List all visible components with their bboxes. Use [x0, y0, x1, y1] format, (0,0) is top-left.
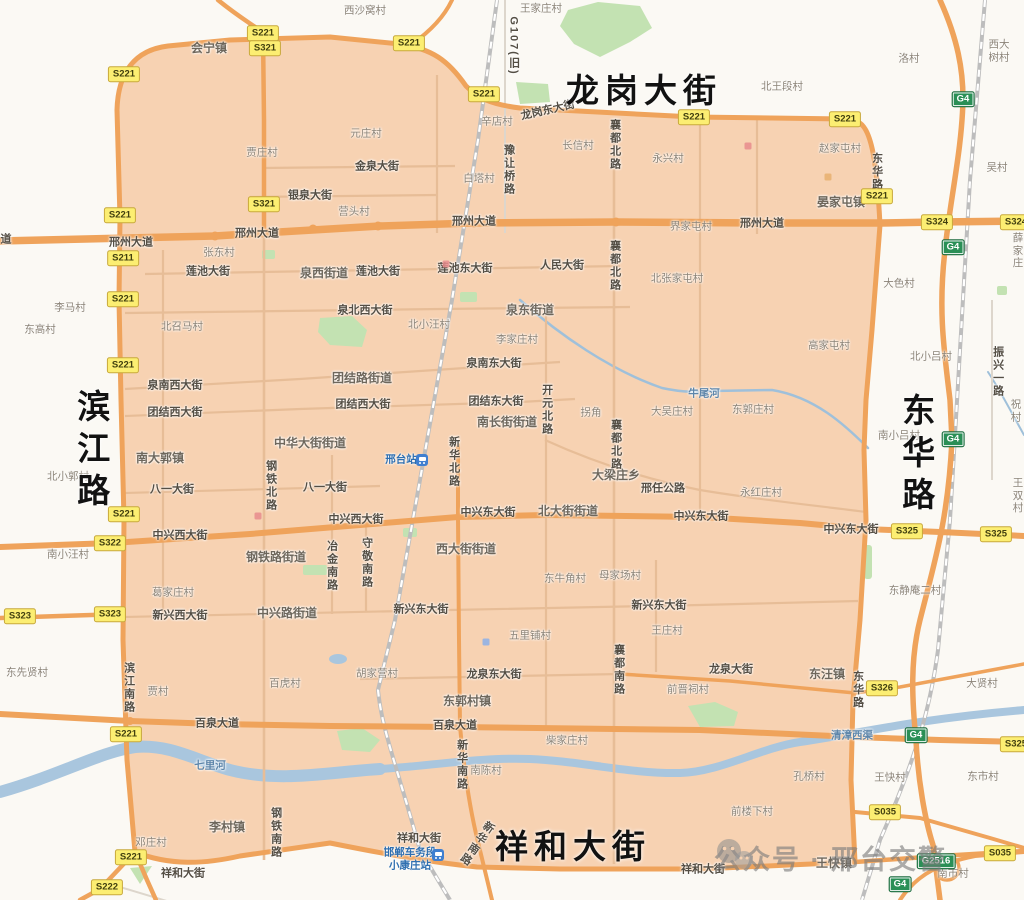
village-label: 孔桥村	[793, 771, 825, 784]
road-badge-s221: S221	[115, 849, 147, 865]
street-label: 中兴西大街	[329, 513, 384, 526]
village-label: 大吴庄村	[651, 406, 693, 419]
river-label: 清漳西渠	[831, 730, 873, 743]
station-label: 邢台站	[385, 454, 417, 467]
street-label: 东华路	[869, 153, 882, 192]
village-label: 北小吕村	[910, 351, 952, 364]
district-label: 中兴路街道	[257, 606, 317, 620]
village-label: 胡家营村	[356, 668, 398, 681]
road-badge-s221: S221	[108, 506, 140, 522]
village-label: 北小汪村	[408, 319, 450, 332]
street-label: 泉南西大街	[148, 379, 203, 392]
street-label: 莲池大街	[356, 265, 400, 278]
road-badge-g4: G4	[889, 876, 912, 892]
road-badge-s221: S221	[247, 25, 279, 41]
street-label: 道	[1, 233, 12, 246]
major-road-title: 东华路	[896, 393, 936, 519]
district-label: 东郭村镇	[443, 694, 491, 708]
road-badge-s221: S221	[104, 207, 136, 223]
street-label: 新兴西大街	[153, 609, 208, 622]
road-badge-s221: S221	[110, 726, 142, 742]
poi-marker	[825, 174, 832, 181]
street-label: 新华南路	[454, 739, 467, 791]
village-label: 南小汪村	[47, 549, 89, 562]
major-road-title: 龙岗大街	[566, 71, 722, 111]
village-label: 母家场村	[599, 570, 641, 583]
poi-marker	[483, 639, 490, 646]
district-label: 泉东街道	[506, 303, 554, 317]
street-label: 滨江南路	[121, 662, 134, 714]
street-label: 祥和大街	[397, 832, 441, 845]
district-label: 会宁镇	[191, 41, 227, 55]
village-label: 北王段村	[761, 81, 803, 94]
village-label: 葛家庄村	[152, 587, 194, 600]
village-label: 西沙窝村	[344, 5, 386, 18]
street-label: 开元北路	[539, 384, 552, 436]
village-label: 大色村	[883, 278, 915, 291]
road-badge-g4: G4	[942, 239, 965, 255]
street-label: G107(旧)	[506, 16, 519, 75]
road-badge-s325: S325	[1000, 736, 1024, 752]
road-badge-s321: S321	[248, 196, 280, 212]
district-label: 中华大街街道	[274, 436, 346, 450]
street-label: 中兴东大街	[461, 506, 516, 519]
street-label: 新华南路	[456, 818, 497, 868]
street-label: 襄都南路	[611, 644, 624, 696]
map-canvas[interactable]: 西沙窝村王家庄村北王段村洛村西大树村吴村辛店村元庄村贾庄村白塔村营头村张东村长信…	[0, 0, 1024, 900]
village-label: 营头村	[338, 206, 370, 219]
street-label: 襄都北路	[607, 119, 620, 171]
street-label: 龙泉东大街	[467, 668, 522, 681]
street-label: 百泉大道	[433, 719, 477, 732]
village-label: 五里铺村	[509, 630, 551, 643]
street-label: 新兴东大街	[394, 603, 449, 616]
station-label: 邯郸车务段 小康庄站	[384, 846, 437, 871]
village-label: 永兴村	[652, 153, 684, 166]
street-label: 新华北路	[446, 436, 459, 488]
village-label: 李马村	[54, 302, 86, 315]
village-label: 高家屯村	[808, 340, 850, 353]
train-station-icon	[432, 849, 444, 861]
street-label: 邢州大道	[452, 215, 496, 228]
district-label: 南大郭镇	[136, 451, 184, 465]
village-label: 吴村	[987, 162, 1008, 175]
road-badge-s322: S322	[94, 535, 126, 551]
street-label: 邢州大道	[109, 236, 153, 249]
road-badge-s222: S222	[91, 879, 123, 895]
street-label: 新兴东大街	[632, 599, 687, 612]
district-label: 团结路街道	[332, 371, 392, 385]
village-label: 长信村	[562, 140, 594, 153]
district-label: 钢铁路街道	[246, 550, 306, 564]
street-label: 邢州大道	[235, 227, 279, 240]
village-label: 洛村	[899, 53, 920, 66]
village-label: 王双村	[1013, 477, 1024, 515]
road-badge-s323: S323	[94, 606, 126, 622]
street-label: 中兴西大街	[153, 529, 208, 542]
street-label: 邢州大道	[740, 217, 784, 230]
village-label: 西大树村	[987, 38, 1012, 63]
district-label: 晏家屯镇	[817, 195, 865, 209]
village-label: 张东村	[203, 247, 235, 260]
village-label: 拐角	[581, 407, 602, 420]
river-label: 牛尾河	[688, 388, 720, 401]
street-label: 邢任公路	[641, 482, 685, 495]
road-badge-s326: S326	[866, 680, 898, 696]
street-label: 振兴一路	[990, 346, 1003, 398]
road-badge-s035: S035	[984, 845, 1016, 861]
road-badge-s221: S221	[829, 111, 861, 127]
village-label: 贾庄村	[246, 147, 278, 160]
road-badge-s221: S221	[107, 291, 139, 307]
major-road-title: 滨江路	[71, 389, 111, 515]
village-label: 贾村	[148, 686, 169, 699]
village-label: 辛店村	[481, 116, 513, 129]
village-label: 东静庵二村	[889, 585, 942, 598]
road-badge-s221: S221	[468, 86, 500, 102]
street-label: 钢铁南路	[268, 807, 281, 859]
road-badge-s221: S221	[678, 109, 710, 125]
village-label: 东先贤村	[6, 667, 48, 680]
village-label: 大贤村	[966, 678, 998, 691]
road-badge-s221: S221	[861, 188, 893, 204]
village-label: 永红庄村	[740, 487, 782, 500]
street-label: 钢铁北路	[263, 460, 276, 512]
road-badge-s221: S221	[108, 66, 140, 82]
district-label: 泉西街道	[300, 266, 348, 280]
village-label: 北召马村	[161, 321, 203, 334]
road-badge-s221: S221	[393, 35, 425, 51]
street-label: 八一大街	[303, 481, 347, 494]
village-label: 赵家屯村	[819, 143, 861, 156]
street-label: 祥和大街	[161, 867, 205, 880]
street-label: 中兴东大街	[674, 510, 729, 523]
street-label: 东华路	[850, 671, 863, 710]
district-label: 南长街街道	[477, 415, 537, 429]
village-label: 东牛角村	[544, 573, 586, 586]
street-label: 豫让桥路	[501, 144, 514, 196]
street-label: 八一大街	[150, 483, 194, 496]
village-label: 前晋祠村	[667, 684, 709, 697]
village-label: 王家庄村	[520, 3, 562, 16]
village-label: 北张家屯村	[651, 273, 704, 286]
village-label: 李家庄村	[496, 334, 538, 347]
river-label: 七里河	[194, 760, 226, 773]
road-badge-g4: G4	[905, 727, 928, 743]
street-label: 莲池大街	[186, 265, 230, 278]
village-label: 薛家庄	[1013, 232, 1024, 270]
map-labels-layer: 西沙窝村王家庄村北王段村洛村西大树村吴村辛店村元庄村贾庄村白塔村营头村张东村长信…	[0, 0, 1024, 900]
street-label: 金泉大街	[355, 160, 399, 173]
village-label: 南陈村	[470, 765, 502, 778]
road-badge-g4: G4	[942, 431, 965, 447]
district-label: 李村镇	[209, 820, 245, 834]
road-badge-g4: G4	[952, 91, 975, 107]
street-label: 泉南东大街	[467, 357, 522, 370]
village-label: 柴家庄村	[546, 735, 588, 748]
village-label: 东高村	[24, 324, 56, 337]
watermark: 公众号 · 邢台交警	[714, 838, 947, 877]
village-label: 王庄村	[651, 625, 683, 638]
road-badge-s035: S035	[869, 804, 901, 820]
street-label: 中兴东大街	[824, 523, 879, 536]
road-badge-s221: S221	[107, 357, 139, 373]
poi-marker	[443, 261, 450, 268]
poi-marker	[255, 513, 262, 520]
wechat-icon	[714, 838, 758, 872]
road-badge-s324: S324	[921, 214, 953, 230]
street-label: 龙泉大街	[709, 663, 753, 676]
road-badge-s211: S211	[107, 250, 139, 266]
major-road-title: 祥和大街	[495, 827, 651, 867]
village-label: 东市村	[967, 771, 999, 784]
street-label: 襄都北路	[608, 419, 621, 471]
street-label: 团结西大街	[336, 398, 391, 411]
village-label: 前楼下村	[731, 806, 773, 819]
street-label: 襄都北路	[607, 240, 620, 292]
village-label: 界家屯村	[670, 221, 712, 234]
street-label: 团结西大街	[148, 406, 203, 419]
street-label: 百泉大道	[195, 717, 239, 730]
street-label: 守敬南路	[359, 537, 372, 589]
street-label: 冶金南路	[324, 540, 337, 592]
district-label: 东汪镇	[809, 667, 845, 681]
village-label: 白塔村	[463, 173, 495, 186]
road-badge-s321: S321	[249, 40, 281, 56]
street-label: 人民大街	[540, 259, 584, 272]
road-badge-s325: S325	[980, 526, 1012, 542]
village-label: 邓庄村	[135, 837, 167, 850]
village-label: 百虎村	[269, 678, 301, 691]
train-station-icon	[416, 454, 428, 466]
poi-marker	[745, 143, 752, 150]
village-label: 东郭庄村	[732, 404, 774, 417]
road-badge-s323: S323	[4, 608, 36, 624]
village-label: 祝村	[1011, 398, 1022, 423]
street-label: 团结东大街	[469, 395, 524, 408]
village-label: 元庄村	[350, 128, 382, 141]
district-label: 北大街街道	[538, 504, 598, 518]
district-label: 西大街街道	[436, 542, 496, 556]
road-badge-s324: S324	[1000, 214, 1024, 230]
road-badge-s325: S325	[891, 523, 923, 539]
village-label: 王快村	[874, 772, 906, 785]
street-label: 泉北西大街	[338, 304, 393, 317]
street-label: 银泉大街	[288, 189, 332, 202]
